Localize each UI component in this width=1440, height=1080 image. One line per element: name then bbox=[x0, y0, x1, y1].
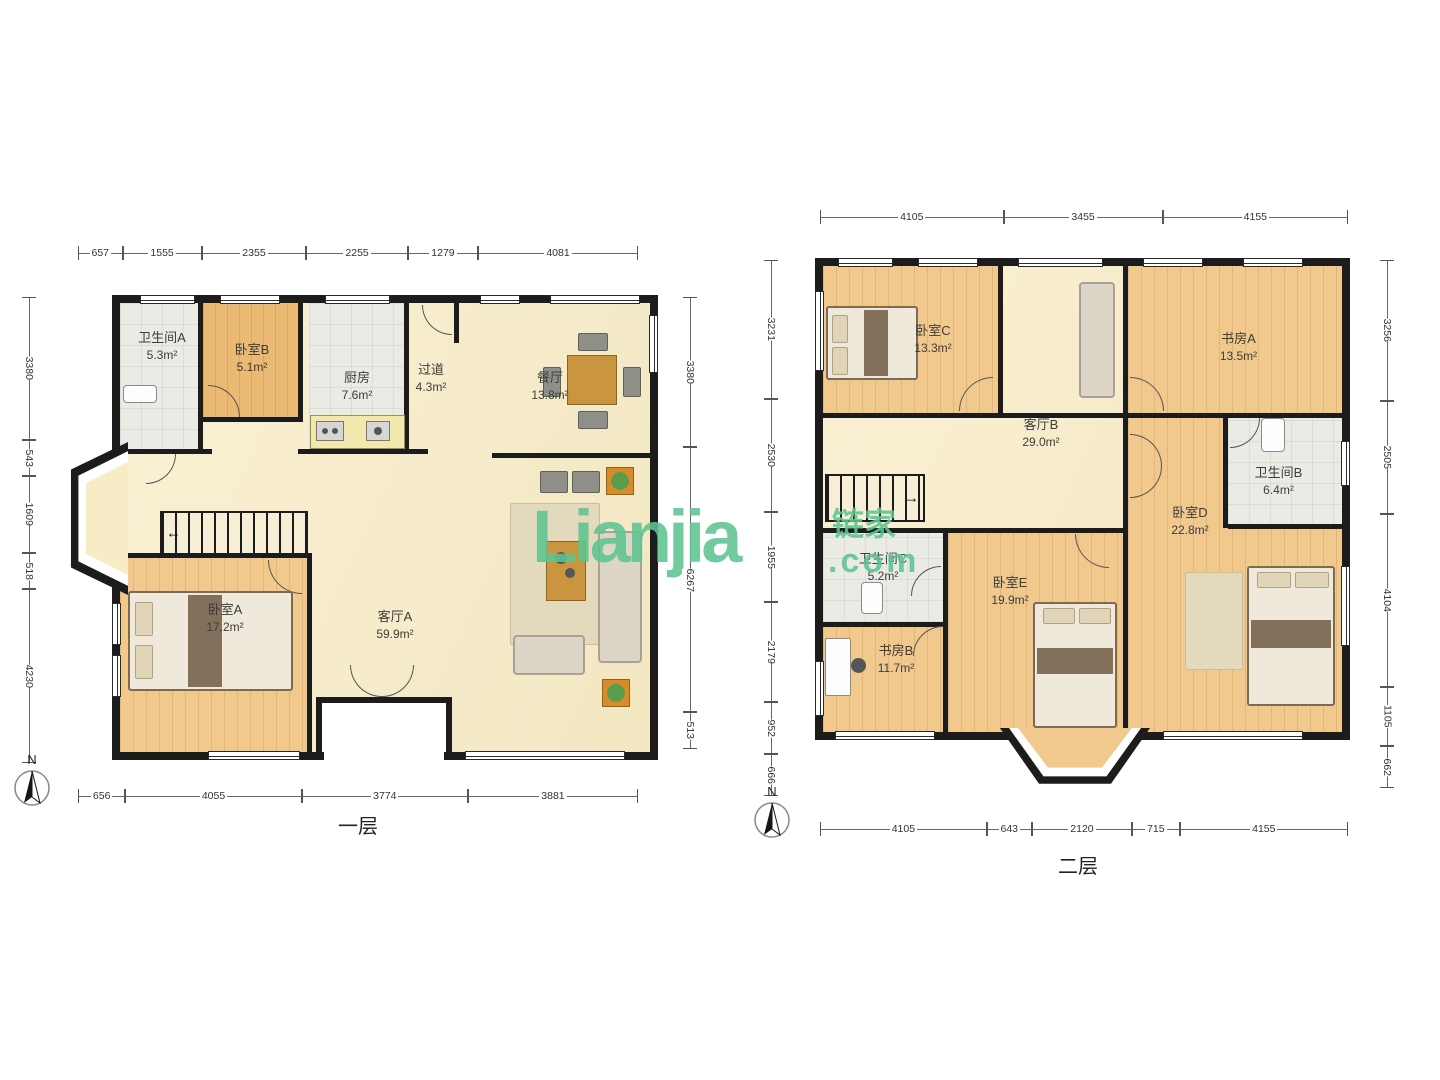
wall bbox=[1123, 266, 1128, 732]
bay-window bbox=[1000, 728, 1150, 790]
window bbox=[480, 295, 520, 304]
dim-segment: 2179 bbox=[764, 602, 778, 701]
double-bed bbox=[1033, 602, 1117, 728]
dim-segment: 715 bbox=[1132, 822, 1179, 836]
dim-segment: 1105 bbox=[1380, 687, 1394, 746]
dim-segment: 643 bbox=[987, 822, 1032, 836]
stove-burner bbox=[374, 427, 382, 435]
window bbox=[112, 655, 121, 697]
floor2-title: 二层 bbox=[1018, 850, 1138, 879]
dim-segment: 4105 bbox=[820, 210, 1004, 224]
room-label-hallway: 过道4.3m² bbox=[404, 361, 458, 395]
toilet bbox=[861, 582, 883, 614]
room-label-bed-b: 卧室B5.1m² bbox=[204, 341, 300, 375]
room-label-bed-d: 卧室D22.8m² bbox=[1135, 504, 1245, 538]
room-bath-a-floor bbox=[120, 303, 200, 451]
dim-segment: 3881 bbox=[468, 789, 638, 803]
kitchen-sink bbox=[316, 421, 344, 441]
dim-chain-f2-bottom: 4105 643 2120 715 4155 bbox=[820, 822, 1348, 836]
room-label-dining: 餐厅13.8m² bbox=[495, 369, 605, 403]
room-label-bath-c: 卫生间C5.2m² bbox=[833, 550, 933, 584]
window bbox=[1143, 258, 1203, 267]
wall bbox=[823, 622, 945, 627]
window bbox=[112, 603, 121, 645]
room-label-bed-e: 卧室E19.9m² bbox=[955, 574, 1065, 608]
dining-chair bbox=[578, 333, 608, 351]
dim-segment: 2255 bbox=[306, 246, 407, 260]
window bbox=[1163, 731, 1303, 740]
dim-segment: 1555 bbox=[123, 246, 202, 260]
dim-segment: 543 bbox=[22, 440, 36, 477]
window bbox=[140, 295, 195, 304]
room-label-study-b: 书房B11.7m² bbox=[841, 642, 951, 676]
dim-segment: 2355 bbox=[202, 246, 307, 260]
dim-segment: 4155 bbox=[1163, 210, 1348, 224]
window bbox=[1018, 258, 1103, 267]
dim-segment: 3774 bbox=[302, 789, 468, 803]
coffee-table bbox=[546, 541, 586, 601]
wall bbox=[307, 553, 312, 752]
wall bbox=[943, 530, 948, 732]
dim-segment: 657 bbox=[78, 246, 123, 260]
window bbox=[465, 751, 625, 760]
floorplan-page: ← 卫生间A5.3m² bbox=[0, 0, 1440, 1080]
dim-segment: 518 bbox=[22, 553, 36, 589]
floorplan-first-floor: ← 卫生间A5.3m² bbox=[112, 295, 658, 760]
wall bbox=[998, 266, 1003, 413]
window bbox=[815, 661, 824, 716]
stairs-first-floor: ← bbox=[160, 511, 308, 555]
dim-chain-f1-bottom: 656 4055 3774 3881 bbox=[78, 789, 638, 803]
floorplan-second-floor: → 卧室C13.3m² 客厅B29.0m² bbox=[815, 258, 1350, 740]
room-label-living-a: 客厅A59.9m² bbox=[325, 608, 465, 642]
window bbox=[1243, 258, 1303, 267]
dim-segment: 1955 bbox=[764, 512, 778, 603]
wall bbox=[298, 449, 428, 454]
sink-basin bbox=[322, 428, 328, 434]
dim-chain-f2-top: 4105 3455 4155 bbox=[820, 210, 1348, 224]
dim-segment: 952 bbox=[764, 702, 778, 755]
entry-double-door-left bbox=[350, 665, 382, 697]
window bbox=[325, 295, 390, 304]
window bbox=[918, 258, 978, 267]
dining-chair bbox=[623, 367, 641, 397]
entry-opening bbox=[324, 752, 444, 761]
armchair bbox=[572, 471, 600, 493]
wall bbox=[492, 453, 650, 458]
stairs-direction-arrow: ← bbox=[166, 526, 181, 541]
compass-n-label: N bbox=[12, 752, 52, 767]
window bbox=[835, 731, 935, 740]
window bbox=[1341, 566, 1350, 646]
room-label-study-a: 书房A13.5m² bbox=[1181, 330, 1296, 364]
bedroom-rug bbox=[1185, 572, 1243, 670]
dim-segment: 4055 bbox=[125, 789, 301, 803]
bay-window bbox=[66, 442, 128, 595]
bath-a-door bbox=[146, 454, 176, 484]
compass-first-floor: N bbox=[12, 752, 52, 813]
room-label-kitchen: 厨房7.6m² bbox=[308, 369, 406, 403]
floor1-title: 一层 bbox=[298, 810, 418, 839]
toilet bbox=[1261, 418, 1285, 452]
dim-chain-f1-left: 3380 543 1609 518 4230 bbox=[22, 297, 36, 763]
dim-segment: 4155 bbox=[1180, 822, 1348, 836]
plant-side-table bbox=[602, 679, 630, 707]
wall bbox=[1228, 524, 1342, 529]
entry-recess bbox=[316, 697, 452, 752]
sofa-long bbox=[1079, 282, 1115, 398]
window bbox=[208, 751, 300, 760]
dim-segment: 4105 bbox=[820, 822, 987, 836]
window bbox=[220, 295, 280, 304]
dim-segment: 3455 bbox=[1004, 210, 1163, 224]
sofa-small bbox=[513, 635, 585, 675]
dim-segment: 4104 bbox=[1380, 514, 1394, 688]
wall bbox=[198, 417, 303, 422]
stairs-direction-arrow: → bbox=[904, 491, 919, 506]
compass-icon bbox=[12, 768, 52, 808]
wall bbox=[198, 303, 203, 453]
dim-segment: 3231 bbox=[764, 260, 778, 399]
wall bbox=[823, 528, 1128, 533]
window bbox=[815, 291, 824, 371]
room-label-bath-b: 卫生间B6.4m² bbox=[1221, 464, 1336, 498]
window bbox=[649, 315, 658, 373]
dim-segment: 1279 bbox=[408, 246, 478, 260]
compass-n-label: N bbox=[752, 784, 792, 799]
room-label-living-b: 客厅B29.0m² bbox=[981, 416, 1101, 450]
dim-segment: 3256 bbox=[1380, 260, 1394, 401]
window bbox=[838, 258, 893, 267]
window bbox=[1341, 441, 1350, 486]
dim-chain-f1-right: 3380 6267 513 bbox=[683, 297, 697, 749]
dim-segment: 4230 bbox=[22, 589, 36, 763]
entry-double-door-right bbox=[382, 665, 414, 697]
wall bbox=[454, 303, 459, 343]
window bbox=[550, 295, 640, 304]
dim-chain-f2-left: 3231 2530 1955 2179 952 666 bbox=[764, 260, 778, 796]
dim-segment: 2505 bbox=[1380, 401, 1394, 513]
room-label-bath-a: 卫生间A5.3m² bbox=[120, 329, 204, 363]
dim-chain-f1-top: 657 1555 2355 2255 1279 4081 bbox=[78, 246, 638, 260]
sink-basin bbox=[332, 428, 338, 434]
double-bed bbox=[1247, 566, 1335, 706]
dining-chair bbox=[578, 411, 608, 429]
dim-segment: 656 bbox=[78, 789, 125, 803]
dim-segment: 513 bbox=[683, 712, 697, 749]
compass-second-floor: N bbox=[752, 784, 792, 845]
dim-segment: 3380 bbox=[683, 297, 697, 447]
armchair bbox=[540, 471, 568, 493]
dim-segment: 3380 bbox=[22, 297, 36, 440]
washbasin bbox=[123, 385, 157, 403]
dim-segment: 6267 bbox=[683, 447, 697, 712]
dim-chain-f2-right: 3256 2505 4104 1105 662 bbox=[1380, 260, 1394, 788]
dim-segment: 2120 bbox=[1032, 822, 1132, 836]
plant-side-table bbox=[606, 467, 634, 495]
dim-segment: 1609 bbox=[22, 476, 36, 553]
sofa-long bbox=[598, 531, 642, 663]
hallway-door bbox=[422, 305, 452, 335]
dim-segment: 2530 bbox=[764, 399, 778, 512]
room-label-bed-c: 卧室C13.3m² bbox=[878, 322, 988, 356]
dim-segment: 4081 bbox=[478, 246, 638, 260]
room-label-bed-a: 卧室A17.2m² bbox=[160, 601, 290, 635]
dim-segment: 662 bbox=[1380, 746, 1394, 788]
stairs-second-floor: → bbox=[825, 474, 925, 522]
compass-icon bbox=[752, 800, 792, 840]
